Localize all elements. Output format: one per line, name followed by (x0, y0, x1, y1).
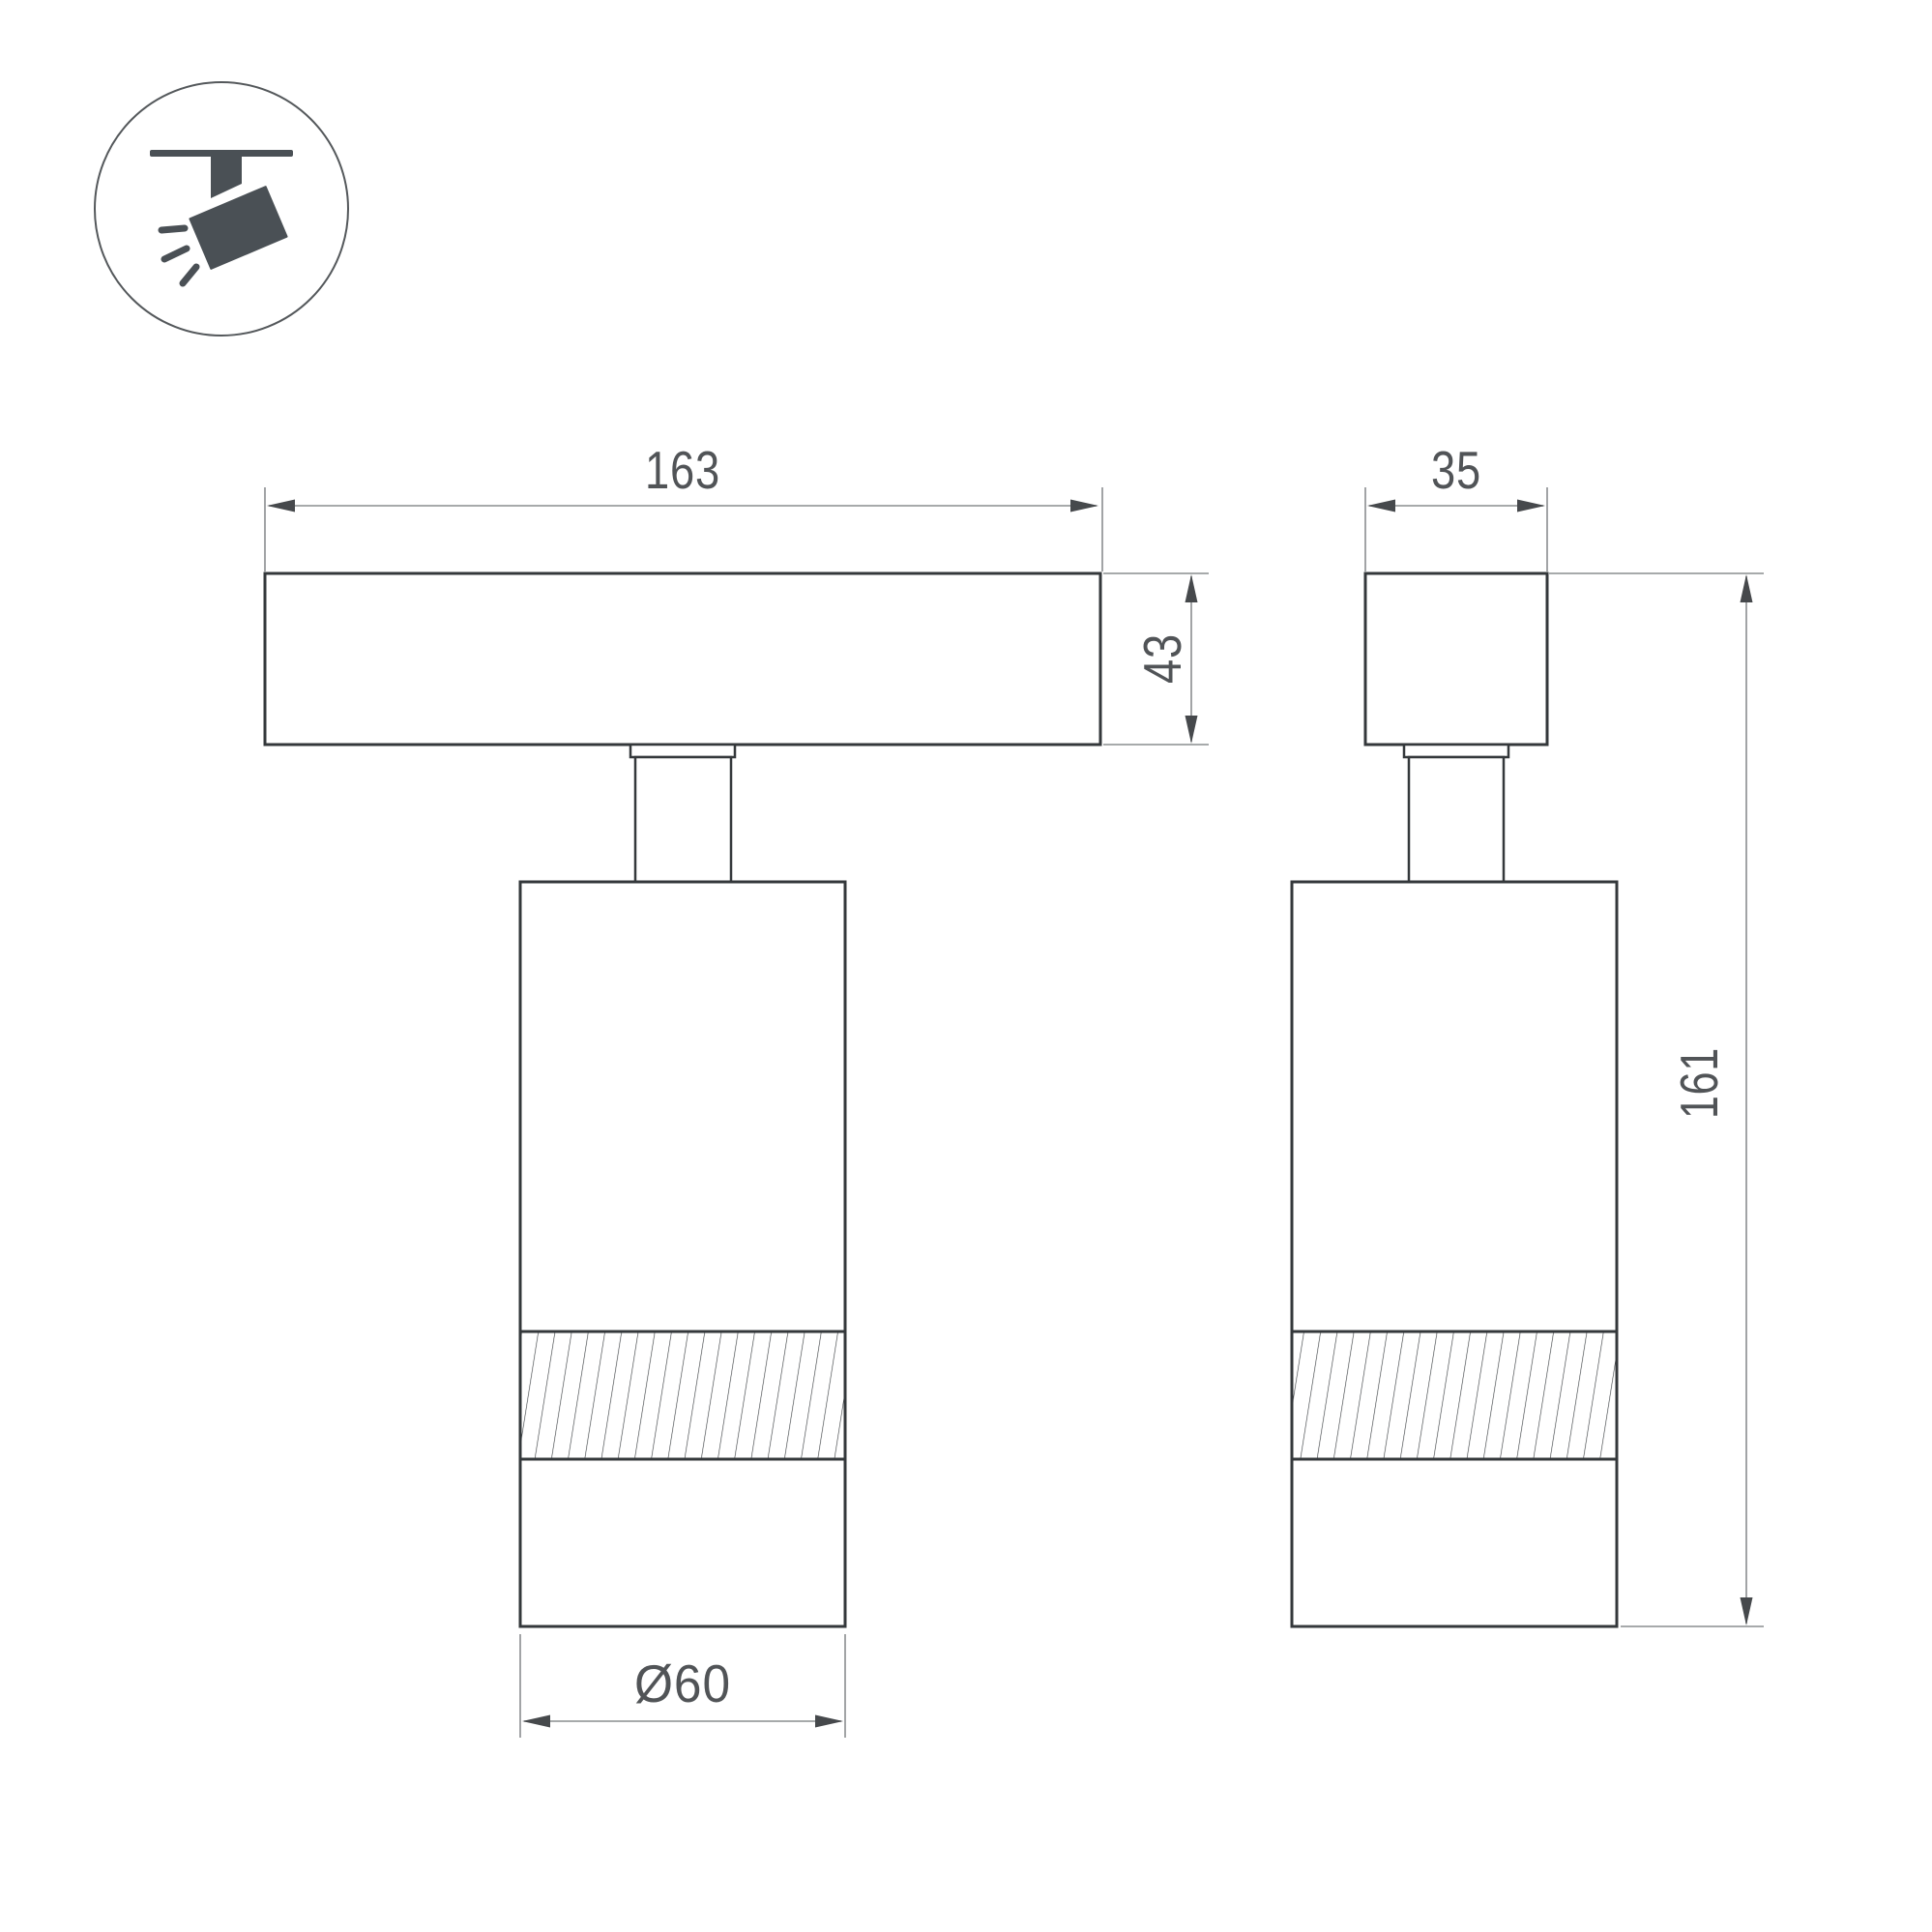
front-width-label: 163 (645, 440, 720, 500)
arrowhead-down (1186, 716, 1198, 744)
arrowhead-down (1741, 1597, 1753, 1625)
front-track-body (265, 573, 1100, 745)
arrowhead-left (522, 1715, 550, 1728)
light-ray (161, 228, 185, 230)
front-dim-diameter: Ø60 (520, 1634, 845, 1738)
front-track-height-label: 43 (1132, 633, 1192, 684)
arrowhead-left (1367, 500, 1395, 512)
side-collar (1404, 745, 1508, 757)
side-dim-depth: 35 (1365, 440, 1547, 571)
side-cylinder-body (1292, 882, 1617, 1626)
arrowhead-up (1741, 574, 1753, 602)
side-depth-label: 35 (1431, 440, 1481, 500)
arrowhead-up (1186, 574, 1198, 602)
front-view: 163 43 Ø60 (265, 440, 1209, 1738)
icon-track-bar (150, 150, 293, 157)
front-cylinder-body (520, 882, 845, 1626)
front-stem (635, 757, 731, 882)
arrowhead-right (815, 1715, 843, 1728)
arrowhead-left (267, 500, 295, 512)
arrowhead-right (1517, 500, 1545, 512)
arrowhead-right (1070, 500, 1098, 512)
drawing-canvas: 163 43 Ø60 (0, 0, 1932, 1932)
front-collar (630, 745, 735, 757)
track-spotlight-icon (95, 82, 348, 336)
front-knurled-band (520, 1332, 845, 1459)
side-view: 35 161 (1292, 440, 1764, 1626)
side-track-body (1365, 573, 1547, 745)
front-diameter-label: Ø60 (634, 1654, 731, 1713)
dimension-drawing: 163 43 Ø60 (0, 0, 1932, 1932)
front-dim-track-height: 43 (1103, 573, 1209, 745)
side-stem (1409, 757, 1504, 882)
side-overall-height-label: 161 (1669, 1047, 1729, 1119)
front-dim-width: 163 (265, 440, 1102, 571)
side-knurled-band (1292, 1332, 1617, 1459)
